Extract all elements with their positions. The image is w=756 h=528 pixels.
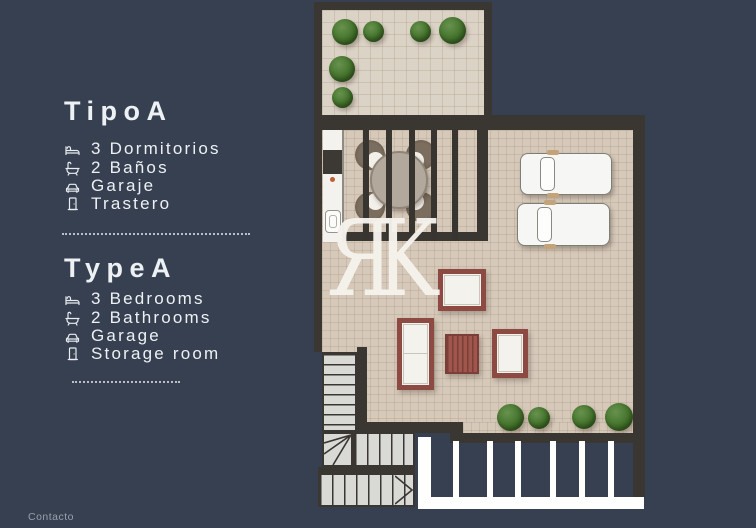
door-icon	[64, 346, 81, 362]
staircase-lower-flight	[318, 473, 415, 507]
plant	[410, 21, 431, 42]
bathtub-icon	[64, 310, 81, 326]
staircase-upper-flight	[322, 352, 357, 432]
feature-label: 2 Baños	[91, 158, 169, 178]
plant	[497, 404, 524, 431]
staircase-mid-flight	[353, 432, 415, 467]
door-icon	[64, 196, 81, 212]
plant	[329, 56, 355, 82]
feature-bedrooms-es: 3 Dormitorios	[64, 140, 221, 158]
plant	[572, 405, 596, 429]
car-icon	[64, 328, 81, 344]
fence-post	[453, 441, 459, 497]
car-mirror	[547, 150, 559, 155]
watermark-logo: ЯK	[327, 206, 421, 312]
fence-post	[487, 441, 493, 497]
staircase-winder	[322, 432, 353, 467]
car-mirror	[544, 200, 556, 205]
brochure-page: ЯK TipoA 3 Dormitorios 2 Baños	[0, 0, 756, 528]
feature-label: Garaje	[91, 176, 155, 196]
feature-label: Garage	[91, 326, 161, 346]
car-icon	[64, 178, 81, 194]
feature-label: Storage room	[91, 344, 220, 364]
plant	[605, 403, 633, 431]
section-title-en: TypeA	[64, 253, 177, 284]
feature-label: 3 Dormitorios	[91, 139, 221, 159]
fence-post	[515, 441, 521, 497]
dining-right-wall	[477, 115, 488, 241]
feature-storage-es: Trastero	[64, 195, 221, 213]
feature-garage-en: Garage	[64, 327, 220, 345]
bed-icon	[64, 141, 81, 157]
plant	[363, 21, 384, 42]
feature-label: 3 Bedrooms	[91, 289, 205, 309]
car-windshield	[537, 207, 552, 242]
left-wall	[314, 115, 322, 352]
plant	[332, 19, 358, 45]
bathtub-icon	[64, 160, 81, 176]
fence-post	[608, 441, 614, 497]
contacto-link[interactable]: Contacto	[28, 511, 74, 523]
sofa	[397, 318, 434, 390]
staircase-wall	[357, 347, 367, 432]
cooktop	[323, 150, 342, 174]
feature-bathrooms-es: 2 Baños	[64, 158, 221, 176]
feature-list-en: 3 Bedrooms 2 Bathrooms Garage	[64, 290, 220, 364]
feature-label: Trastero	[91, 194, 171, 214]
car	[517, 203, 610, 246]
property-info-panel: TipoA 3 Dormitorios 2 Baños	[0, 0, 300, 528]
plant	[528, 407, 550, 429]
car-mirror	[544, 244, 556, 249]
feature-list-es: 3 Dormitorios 2 Baños Garaje	[64, 140, 221, 214]
fence-post	[579, 441, 585, 497]
section-title-es: TipoA	[64, 96, 173, 127]
car	[520, 153, 612, 195]
plant	[439, 17, 466, 44]
feature-label: 2 Bathrooms	[91, 308, 212, 328]
feature-bathrooms-en: 2 Bathrooms	[64, 308, 220, 326]
plant	[332, 87, 353, 108]
fence-bottom-rail	[418, 497, 644, 509]
feature-bedrooms-en: 3 Bedrooms	[64, 290, 220, 308]
armchair	[438, 269, 486, 311]
bed-icon	[64, 291, 81, 307]
ceiling-beam	[431, 130, 437, 241]
burner-dot	[330, 177, 335, 182]
fence-post	[550, 441, 556, 497]
feature-garage-es: Garaje	[64, 177, 221, 195]
feature-storage-en: Storage room	[64, 345, 220, 363]
car-windshield	[540, 157, 555, 191]
dotted-separator	[62, 233, 250, 235]
dotted-separator	[72, 381, 180, 383]
car-mirror	[547, 193, 559, 198]
bottom-wall-right	[450, 433, 645, 443]
armchair	[492, 329, 528, 378]
coffee-table	[445, 334, 479, 374]
ceiling-beam	[452, 130, 458, 241]
